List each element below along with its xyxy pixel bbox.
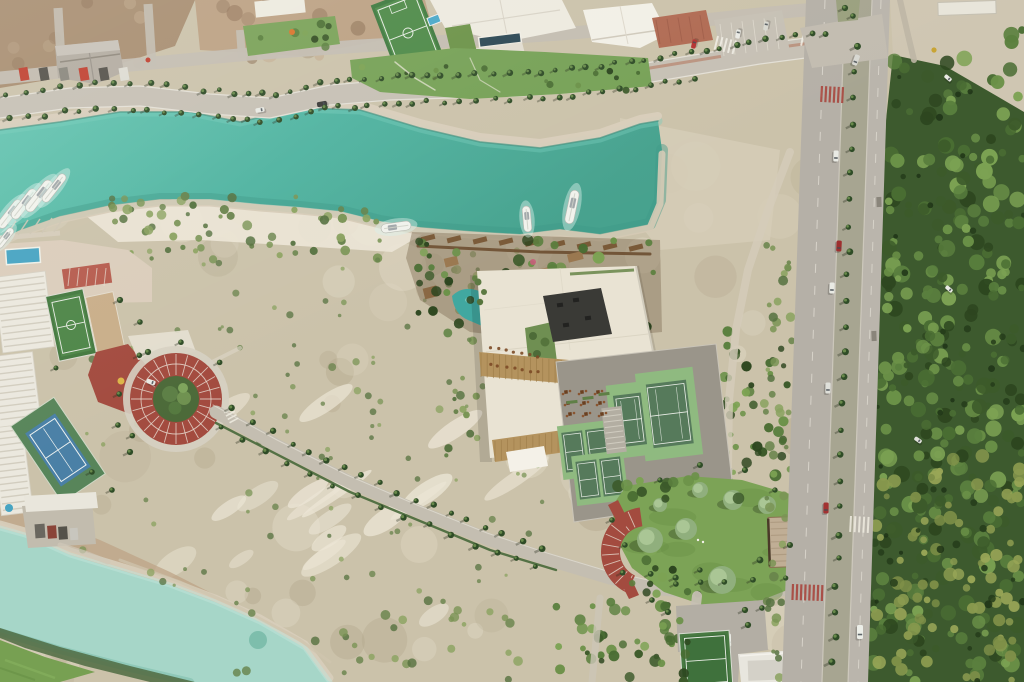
aerial-photo bbox=[0, 0, 1024, 682]
light-haze-overlay bbox=[0, 0, 1024, 682]
aerial-photo-canvas bbox=[0, 0, 1024, 682]
